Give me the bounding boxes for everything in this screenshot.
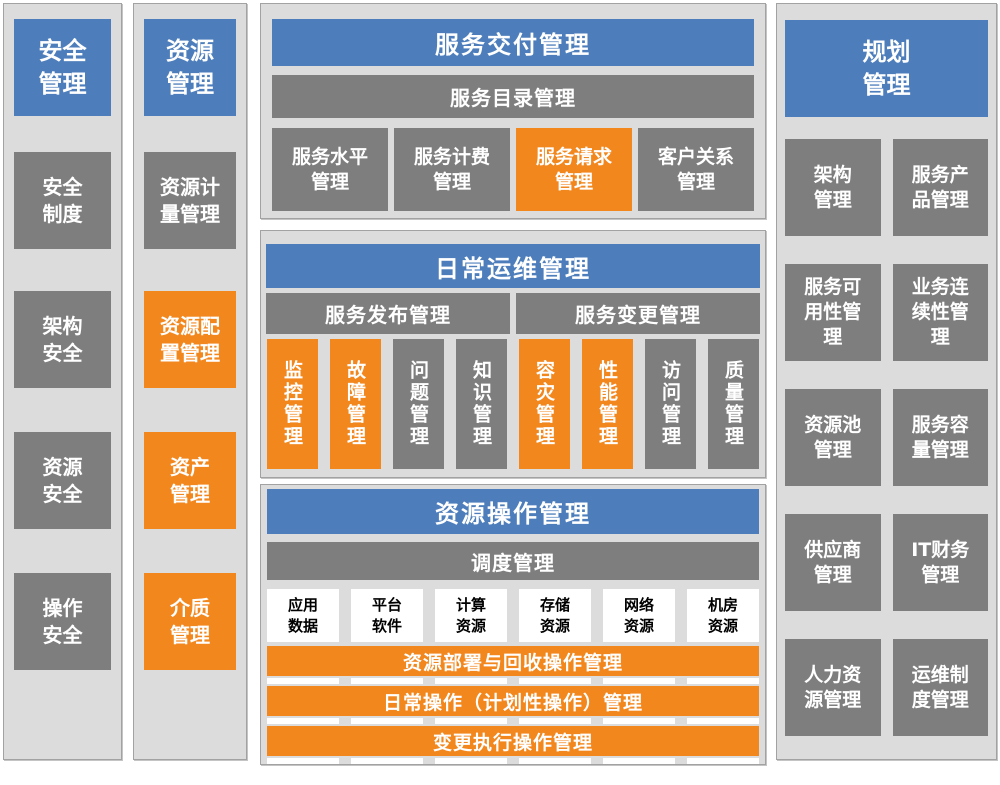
deploy-recycle-ops-bar: 资源部署与回收操作管理	[267, 646, 759, 676]
resource-pool-box: 资源池 管理	[785, 389, 881, 486]
datacenter-resource-box: 机房 资源	[687, 589, 759, 642]
compute-resource-box: 计算 资源	[435, 589, 507, 642]
daily-ops-subbars: 服务发布管理 服务变更管理	[266, 293, 760, 334]
platform-software-box: 平台 软件	[351, 589, 423, 642]
service-delivery-row: 服务水平 管理 服务计费 管理 服务请求 管理 客户关系 管理	[272, 128, 754, 211]
security-box-resource: 资源 安全	[14, 432, 111, 529]
performance-box: 性能管理	[582, 339, 633, 469]
security-box-policy: 安全 制度	[14, 152, 111, 249]
supplier-mgmt-box: 供应商 管理	[785, 514, 881, 611]
knowledge-box: 知识管理	[456, 339, 507, 469]
resource-box-media: 介质 管理	[144, 573, 236, 670]
resource-box-configuration: 资源配 置管理	[144, 291, 236, 388]
planning-panel-title: 规划 管理	[785, 20, 988, 117]
resource-type-row: 应用 数据 平台 软件 计算 资源 存储 资源 网络 资源 机房 资源	[267, 589, 759, 642]
change-execution-ops-bar: 变更执行操作管理	[267, 726, 759, 756]
problem-box: 问题管理	[393, 339, 444, 469]
resource-box-metering: 资源计 量管理	[144, 152, 236, 249]
service-release-bar: 服务发布管理	[266, 293, 510, 334]
service-capacity-box: 服务容 量管理	[893, 389, 989, 486]
business-continuity-box: 业务连 续性管 理	[893, 264, 989, 361]
column-strip	[267, 758, 759, 764]
service-product-box: 服务产 品管理	[893, 139, 989, 236]
hr-mgmt-box: 人力资 源管理	[785, 639, 881, 736]
planning-grid: 架构 管理 服务产 品管理 服务可 用性管 理 业务连 续性管 理 资源池 管理…	[785, 139, 988, 736]
architecture-mgmt-box: 架构 管理	[785, 139, 881, 236]
resource-ops-title: 资源操作管理	[267, 489, 759, 534]
access-box: 访问管理	[645, 339, 696, 469]
daily-ops-panel: 日常运维管理 服务发布管理 服务变更管理 监控管理 故障管理 问题管理 知识管理…	[260, 230, 766, 478]
itsm-framework-diagram: 安全 管理 安全 制度 架构 安全 资源 安全 操作 安全 资源 管理 资源计 …	[0, 0, 1000, 785]
scheduling-bar: 调度管理	[267, 542, 759, 580]
monitoring-box: 监控管理	[267, 339, 318, 469]
service-billing-box: 服务计费 管理	[394, 128, 510, 211]
column-strip	[267, 678, 759, 684]
security-box-operation: 操作 安全	[14, 573, 111, 670]
column-strip	[267, 718, 759, 724]
storage-resource-box: 存储 资源	[519, 589, 591, 642]
it-finance-box: IT财务 管理	[893, 514, 989, 611]
service-availability-box: 服务可 用性管 理	[785, 264, 881, 361]
daily-ops-title: 日常运维管理	[266, 244, 760, 288]
resource-box-asset: 资产 管理	[144, 432, 236, 529]
service-request-box: 服务请求 管理	[516, 128, 632, 211]
resource-ops-panel: 资源操作管理 调度管理 应用 数据 平台 软件 计算 资源 存储 资源 网络 资…	[260, 484, 766, 765]
network-resource-box: 网络 资源	[603, 589, 675, 642]
quality-box: 质量管理	[708, 339, 759, 469]
security-panel-title: 安全 管理	[14, 19, 111, 116]
daily-planned-ops-bar: 日常操作（计划性操作）管理	[267, 686, 759, 716]
resource-panel: 资源 管理 资源计 量管理 资源配 置管理 资产 管理 介质 管理	[133, 3, 247, 760]
ops-policy-box: 运维制 度管理	[893, 639, 989, 736]
planning-panel: 规划 管理 架构 管理 服务产 品管理 服务可 用性管 理 业务连 续性管 理 …	[776, 3, 997, 760]
service-delivery-title: 服务交付管理	[272, 19, 754, 66]
customer-relation-box: 客户关系 管理	[638, 128, 754, 211]
app-data-box: 应用 数据	[267, 589, 339, 642]
service-change-bar: 服务变更管理	[516, 293, 760, 334]
resource-panel-title: 资源 管理	[144, 19, 236, 116]
service-level-box: 服务水平 管理	[272, 128, 388, 211]
disaster-recovery-box: 容灾管理	[519, 339, 570, 469]
security-panel: 安全 管理 安全 制度 架构 安全 资源 安全 操作 安全	[3, 3, 122, 760]
security-box-architecture: 架构 安全	[14, 291, 111, 388]
service-catalog-bar: 服务目录管理	[272, 75, 754, 118]
service-delivery-panel: 服务交付管理 服务目录管理 服务水平 管理 服务计费 管理 服务请求 管理 客户…	[260, 3, 766, 219]
incident-box: 故障管理	[330, 339, 381, 469]
daily-ops-row: 监控管理 故障管理 问题管理 知识管理 容灾管理 性能管理 访问管理 质量管理	[266, 339, 760, 469]
